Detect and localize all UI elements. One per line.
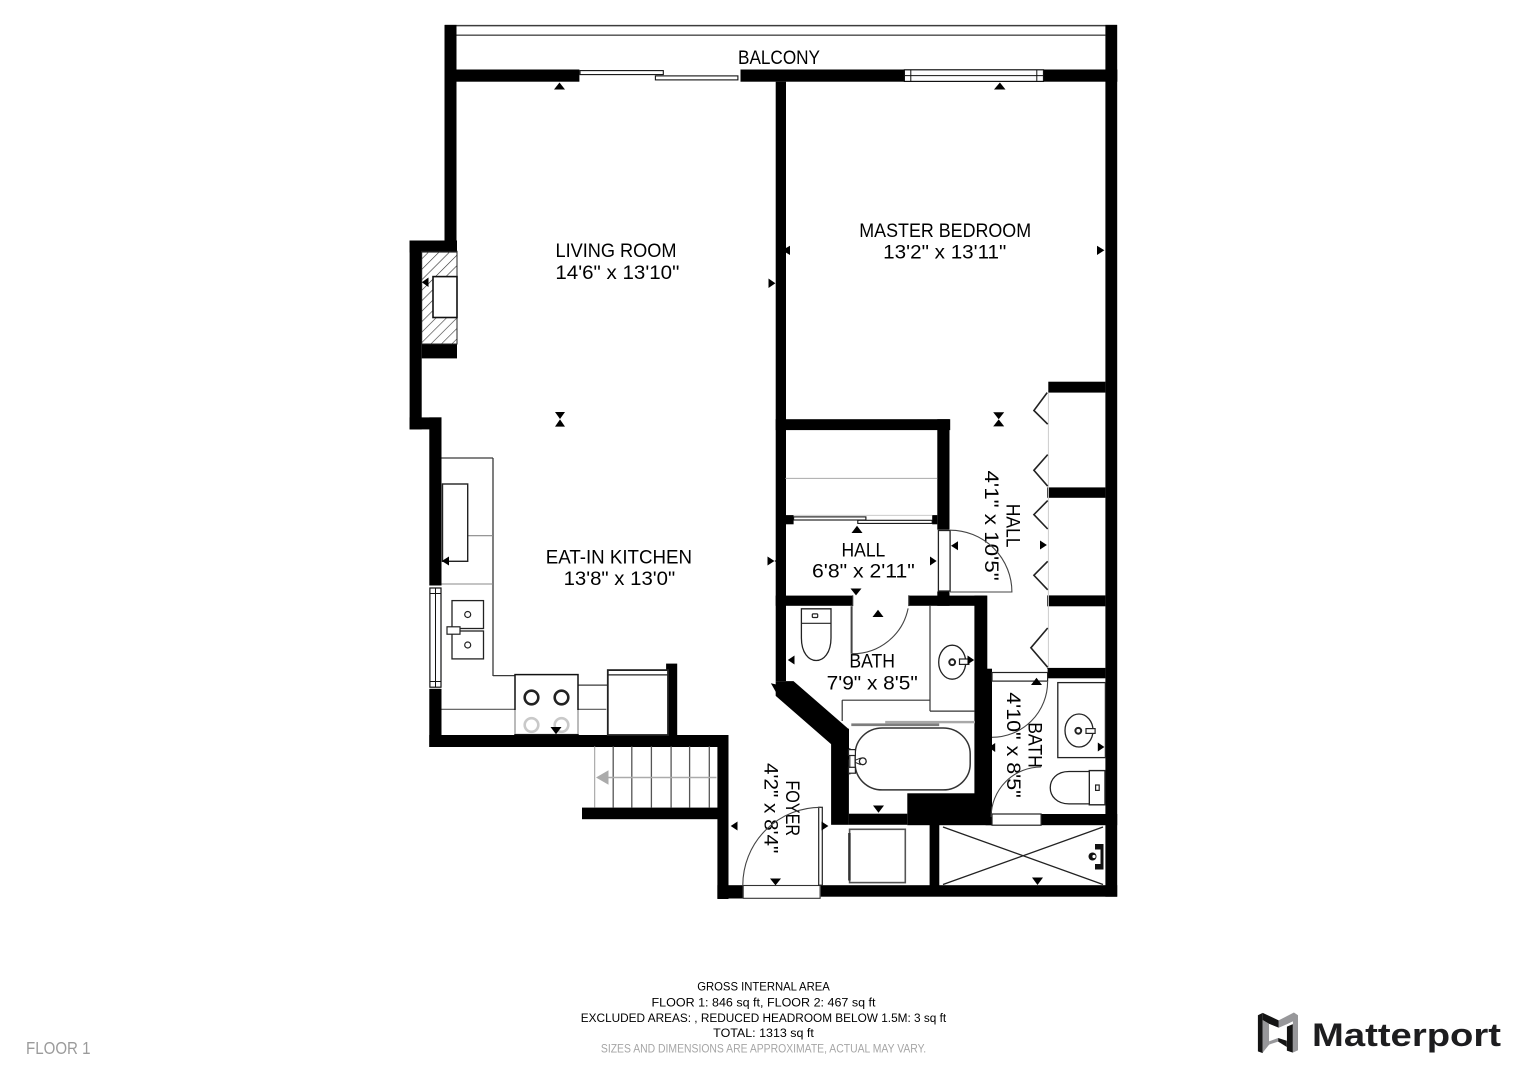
svg-text:7'9" x 8'5": 7'9" x 8'5" [827,674,918,695]
svg-text:FLOOR 1: FLOOR 1 [26,1038,91,1058]
svg-text:4'1" x 10'5": 4'1" x 10'5" [980,470,1001,580]
svg-text:GROSS INTERNAL AREA: GROSS INTERNAL AREA [697,980,830,994]
svg-text:LIVING ROOM: LIVING ROOM [556,241,677,262]
svg-text:FOYER: FOYER [781,780,802,836]
svg-text:MASTER BEDROOM: MASTER BEDROOM [859,221,1031,242]
svg-text:EXCLUDED AREAS: , REDUCED HEAD: EXCLUDED AREAS: , REDUCED HEADROOM BELOW… [581,1011,947,1025]
svg-text:TOTAL: 1313 sq ft: TOTAL: 1313 sq ft [713,1026,814,1040]
svg-text:14'6" x 13'10": 14'6" x 13'10" [555,263,679,284]
svg-text:BALCONY: BALCONY [738,48,820,69]
svg-text:Matterport: Matterport [1312,1017,1501,1053]
svg-text:13'8" x 13'0": 13'8" x 13'0" [564,569,676,590]
svg-text:6'8" x 2'11": 6'8" x 2'11" [812,562,915,583]
svg-text:BATH: BATH [849,651,895,672]
svg-text:HALL: HALL [842,541,886,562]
svg-text:EAT-IN KITCHEN: EAT-IN KITCHEN [546,548,692,569]
svg-text:HALL: HALL [1001,504,1022,548]
svg-text:4'2" x 8'4": 4'2" x 8'4" [760,763,781,853]
svg-text:FLOOR 1: 846 sq ft, FLOOR 2: 4: FLOOR 1: 846 sq ft, FLOOR 2: 467 sq ft [652,995,877,1009]
svg-text:SIZES AND DIMENSIONS ARE APPRO: SIZES AND DIMENSIONS ARE APPROXIMATE, AC… [601,1041,926,1055]
svg-text:BATH: BATH [1024,722,1045,768]
svg-text:13'2" x 13'11": 13'2" x 13'11" [883,243,1006,264]
